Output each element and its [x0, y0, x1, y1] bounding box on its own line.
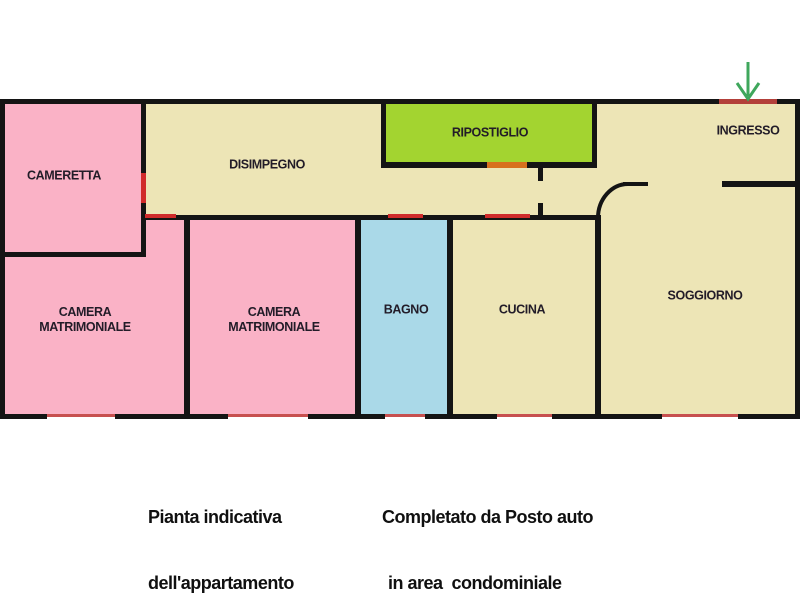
window-camera-1: [47, 414, 115, 419]
label-line: CAMERA: [39, 305, 130, 320]
door-marker-cameretta: [141, 173, 146, 203]
label-camera-matrimoniale-1: CAMERA MATRIMONIALE: [39, 305, 130, 335]
window-red-line: [497, 414, 552, 417]
wall-ripostiglio-left: [381, 104, 386, 168]
label-cameretta: CAMERETTA: [27, 169, 101, 184]
label-cucina: CUCINA: [499, 303, 545, 318]
caption-line: Completato da Posto auto: [382, 506, 593, 528]
entrance-arrow-icon: [737, 62, 759, 99]
window-soggiorno: [662, 414, 738, 419]
wall-divider-cucina-soggiorno: [595, 215, 601, 419]
caption-parking-note: Completato da Posto auto in area condomi…: [382, 462, 593, 600]
wall-left: [0, 99, 5, 419]
window-cucina: [497, 414, 552, 419]
room-bagno: [355, 220, 453, 415]
wall-right: [795, 99, 800, 419]
wall-divider-bagno-cucina: [447, 215, 453, 419]
caption-line: in area condominiale: [388, 572, 593, 594]
door-marker-bagno: [388, 214, 423, 218]
label-bagno: BAGNO: [384, 303, 429, 318]
door-leaf-soggiorno: [623, 182, 648, 186]
wall-divider-camera-bagno: [355, 215, 361, 419]
label-line: MATRIMONIALE: [228, 320, 319, 335]
caption-plan-note: Pianta indicativa dell'appartamento: [148, 462, 294, 600]
window-bagno: [385, 414, 425, 419]
window-red-line: [385, 414, 425, 417]
door-marker-cucina: [485, 214, 530, 218]
label-line: CAMERA: [228, 305, 319, 320]
door-marker-ripostiglio: [487, 162, 527, 168]
window-red-line: [47, 414, 115, 417]
door-marker-entrance: [719, 99, 777, 104]
wall-top: [0, 99, 800, 104]
window-red-line: [662, 414, 738, 417]
wall-ingresso-soggiorno: [722, 181, 800, 187]
wall-cameretta-bottom: [0, 252, 146, 257]
label-ripostiglio: RIPOSTIGLIO: [452, 126, 528, 141]
wall-corridor-stub-upper: [538, 168, 543, 181]
floor-plan-image: CAMERETTA DISIMPEGNO RIPOSTIGLIO INGRESS…: [0, 0, 800, 600]
arrow-head: [737, 83, 759, 99]
wall-divider-camere: [184, 215, 190, 419]
label-disimpegno: DISIMPEGNO: [229, 158, 305, 173]
window-red-line: [228, 414, 308, 417]
wall-corridor-stub-lower: [538, 203, 543, 220]
wall-corridor-bottom: [141, 215, 600, 220]
caption-line: dell'appartamento: [148, 572, 294, 594]
label-ingresso: INGRESSO: [717, 124, 780, 139]
label-line: MATRIMONIALE: [39, 320, 130, 335]
window-camera-2: [228, 414, 308, 419]
label-camera-matrimoniale-2: CAMERA MATRIMONIALE: [228, 305, 319, 335]
door-marker-camera-1: [145, 214, 176, 218]
caption-line: Pianta indicativa: [148, 506, 294, 528]
wall-ripostiglio-right: [592, 104, 597, 168]
label-soggiorno: SOGGIORNO: [668, 289, 743, 304]
